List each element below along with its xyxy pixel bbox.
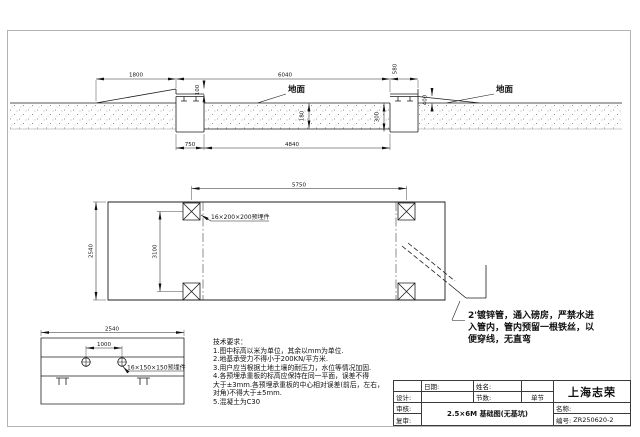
sections-value: 单节 xyxy=(522,392,554,403)
company-name: 上海志荣 xyxy=(554,381,630,403)
ground-label-middle: 地面 xyxy=(288,84,306,95)
date-label: 日期: xyxy=(422,381,474,392)
dim-2540-plan: 2540 xyxy=(89,244,95,258)
pipe-note-line: 入管内，管内预留一根铁丝，以 xyxy=(468,322,614,334)
name-label: 姓名: xyxy=(474,381,522,392)
dim-580: 580 xyxy=(393,63,399,74)
name-field-label: 名称: xyxy=(554,403,630,414)
detail-plate-label: 16×150×150预埋件 xyxy=(127,364,186,372)
number-value: ZR250620-2 xyxy=(573,416,613,424)
section-view: 1800 6040 580 100 400 300 180 750 4840 地… xyxy=(10,63,622,150)
detail-t-anchors xyxy=(56,378,150,385)
foundation-outline xyxy=(108,202,445,300)
dim-1800: 1800 xyxy=(129,73,143,79)
dim-400: 400 xyxy=(423,94,429,105)
ground-label-right: 地面 xyxy=(496,84,514,95)
tech-note-line: 大于±3mm.各预埋承重板的中心相对误差(前后，左右， xyxy=(213,381,397,390)
dim-2540-detail: 2540 xyxy=(105,327,119,333)
dim-4840: 4840 xyxy=(285,142,299,148)
tech-notes: 技术要求： 1.图中标高以米为单位，其余以mm为单位. 2.地基承受力不得小于2… xyxy=(213,338,397,406)
pipe-note: 2'镀锌管，通入磅房，严禁水进 入管内，管内预留一根铁丝，以 便穿线，无直弯 xyxy=(468,310,614,346)
check-label: 审核: xyxy=(394,403,422,414)
tech-notes-title: 技术要求： xyxy=(213,338,397,347)
dim-100: 100 xyxy=(195,84,201,95)
pipe-note-line: 2'镀锌管，通入磅房，严禁水进 xyxy=(468,310,614,322)
design-label: 设计: xyxy=(394,392,422,403)
detail-extension-lines xyxy=(41,330,184,358)
tech-note-line: 5.混凝土为C30 xyxy=(213,398,397,407)
dim-6040: 6040 xyxy=(278,73,292,79)
plan-view: 5750 2540 3100 16×200×200预埋件 xyxy=(89,183,487,321)
title-block-empty-cell xyxy=(394,381,422,392)
tech-note-line: 对角)不得大于±5mm. xyxy=(213,389,397,398)
tech-note-line: 1.图中标高以米为单位，其余以mm为单位. xyxy=(213,347,397,356)
dim-3100: 3100 xyxy=(153,244,159,258)
drawing-sheet: 1800 6040 580 100 400 300 180 750 4840 地… xyxy=(0,0,640,437)
title-block-empty-cell xyxy=(522,381,554,392)
dim-1000: 1000 xyxy=(97,342,111,348)
plan-extension-lines xyxy=(93,186,407,300)
soil-hatch-right xyxy=(418,104,622,129)
drawing-title: 2.5×6M 基础图(无基坑) xyxy=(422,403,554,425)
tech-note-line: 4.各预埋承重板的标高应保持在同一平面，误差不得 xyxy=(213,372,397,381)
sections-label: 节数: xyxy=(474,392,522,403)
embedded-plate-anchors xyxy=(181,97,413,102)
plate-label-leader xyxy=(201,215,211,221)
number-label: 编号: xyxy=(556,415,571,425)
ground-label-leaders xyxy=(258,94,494,103)
drawing-number: 编号: ZR250620-2 xyxy=(554,414,630,425)
pipe-note-line: 便穿线，无直弯 xyxy=(468,334,614,346)
recheck-label: 复审: xyxy=(394,414,422,425)
title-block-empty-cell xyxy=(422,392,474,403)
soil-hatch-left xyxy=(10,104,176,129)
dim-5750: 5750 xyxy=(292,183,306,189)
pipe-note-leader xyxy=(452,301,465,321)
detail-view: 2540 1000 16×150×150预埋件 xyxy=(41,327,186,405)
dim-750: 750 xyxy=(185,142,196,148)
tech-note-line: 3.用户应当根据土地土壤的耐压力，水位等情况加固. xyxy=(213,364,397,373)
conduit-pipe-dashed xyxy=(402,243,455,284)
conduit-pipe-elbow xyxy=(449,265,486,298)
plan-plate-label: 16×200×200预埋件 xyxy=(211,213,270,221)
title-block: 日期: 姓名: 上海志荣 设计: 节数: 单节 审核: 2.5×6M 基础图(无… xyxy=(393,380,631,426)
dim-300: 300 xyxy=(375,111,381,122)
tech-note-line: 2.地基承受力不得小于200KN/平方米. xyxy=(213,355,397,364)
soil-hatch-middle xyxy=(204,104,390,129)
dim-180: 180 xyxy=(300,110,306,121)
